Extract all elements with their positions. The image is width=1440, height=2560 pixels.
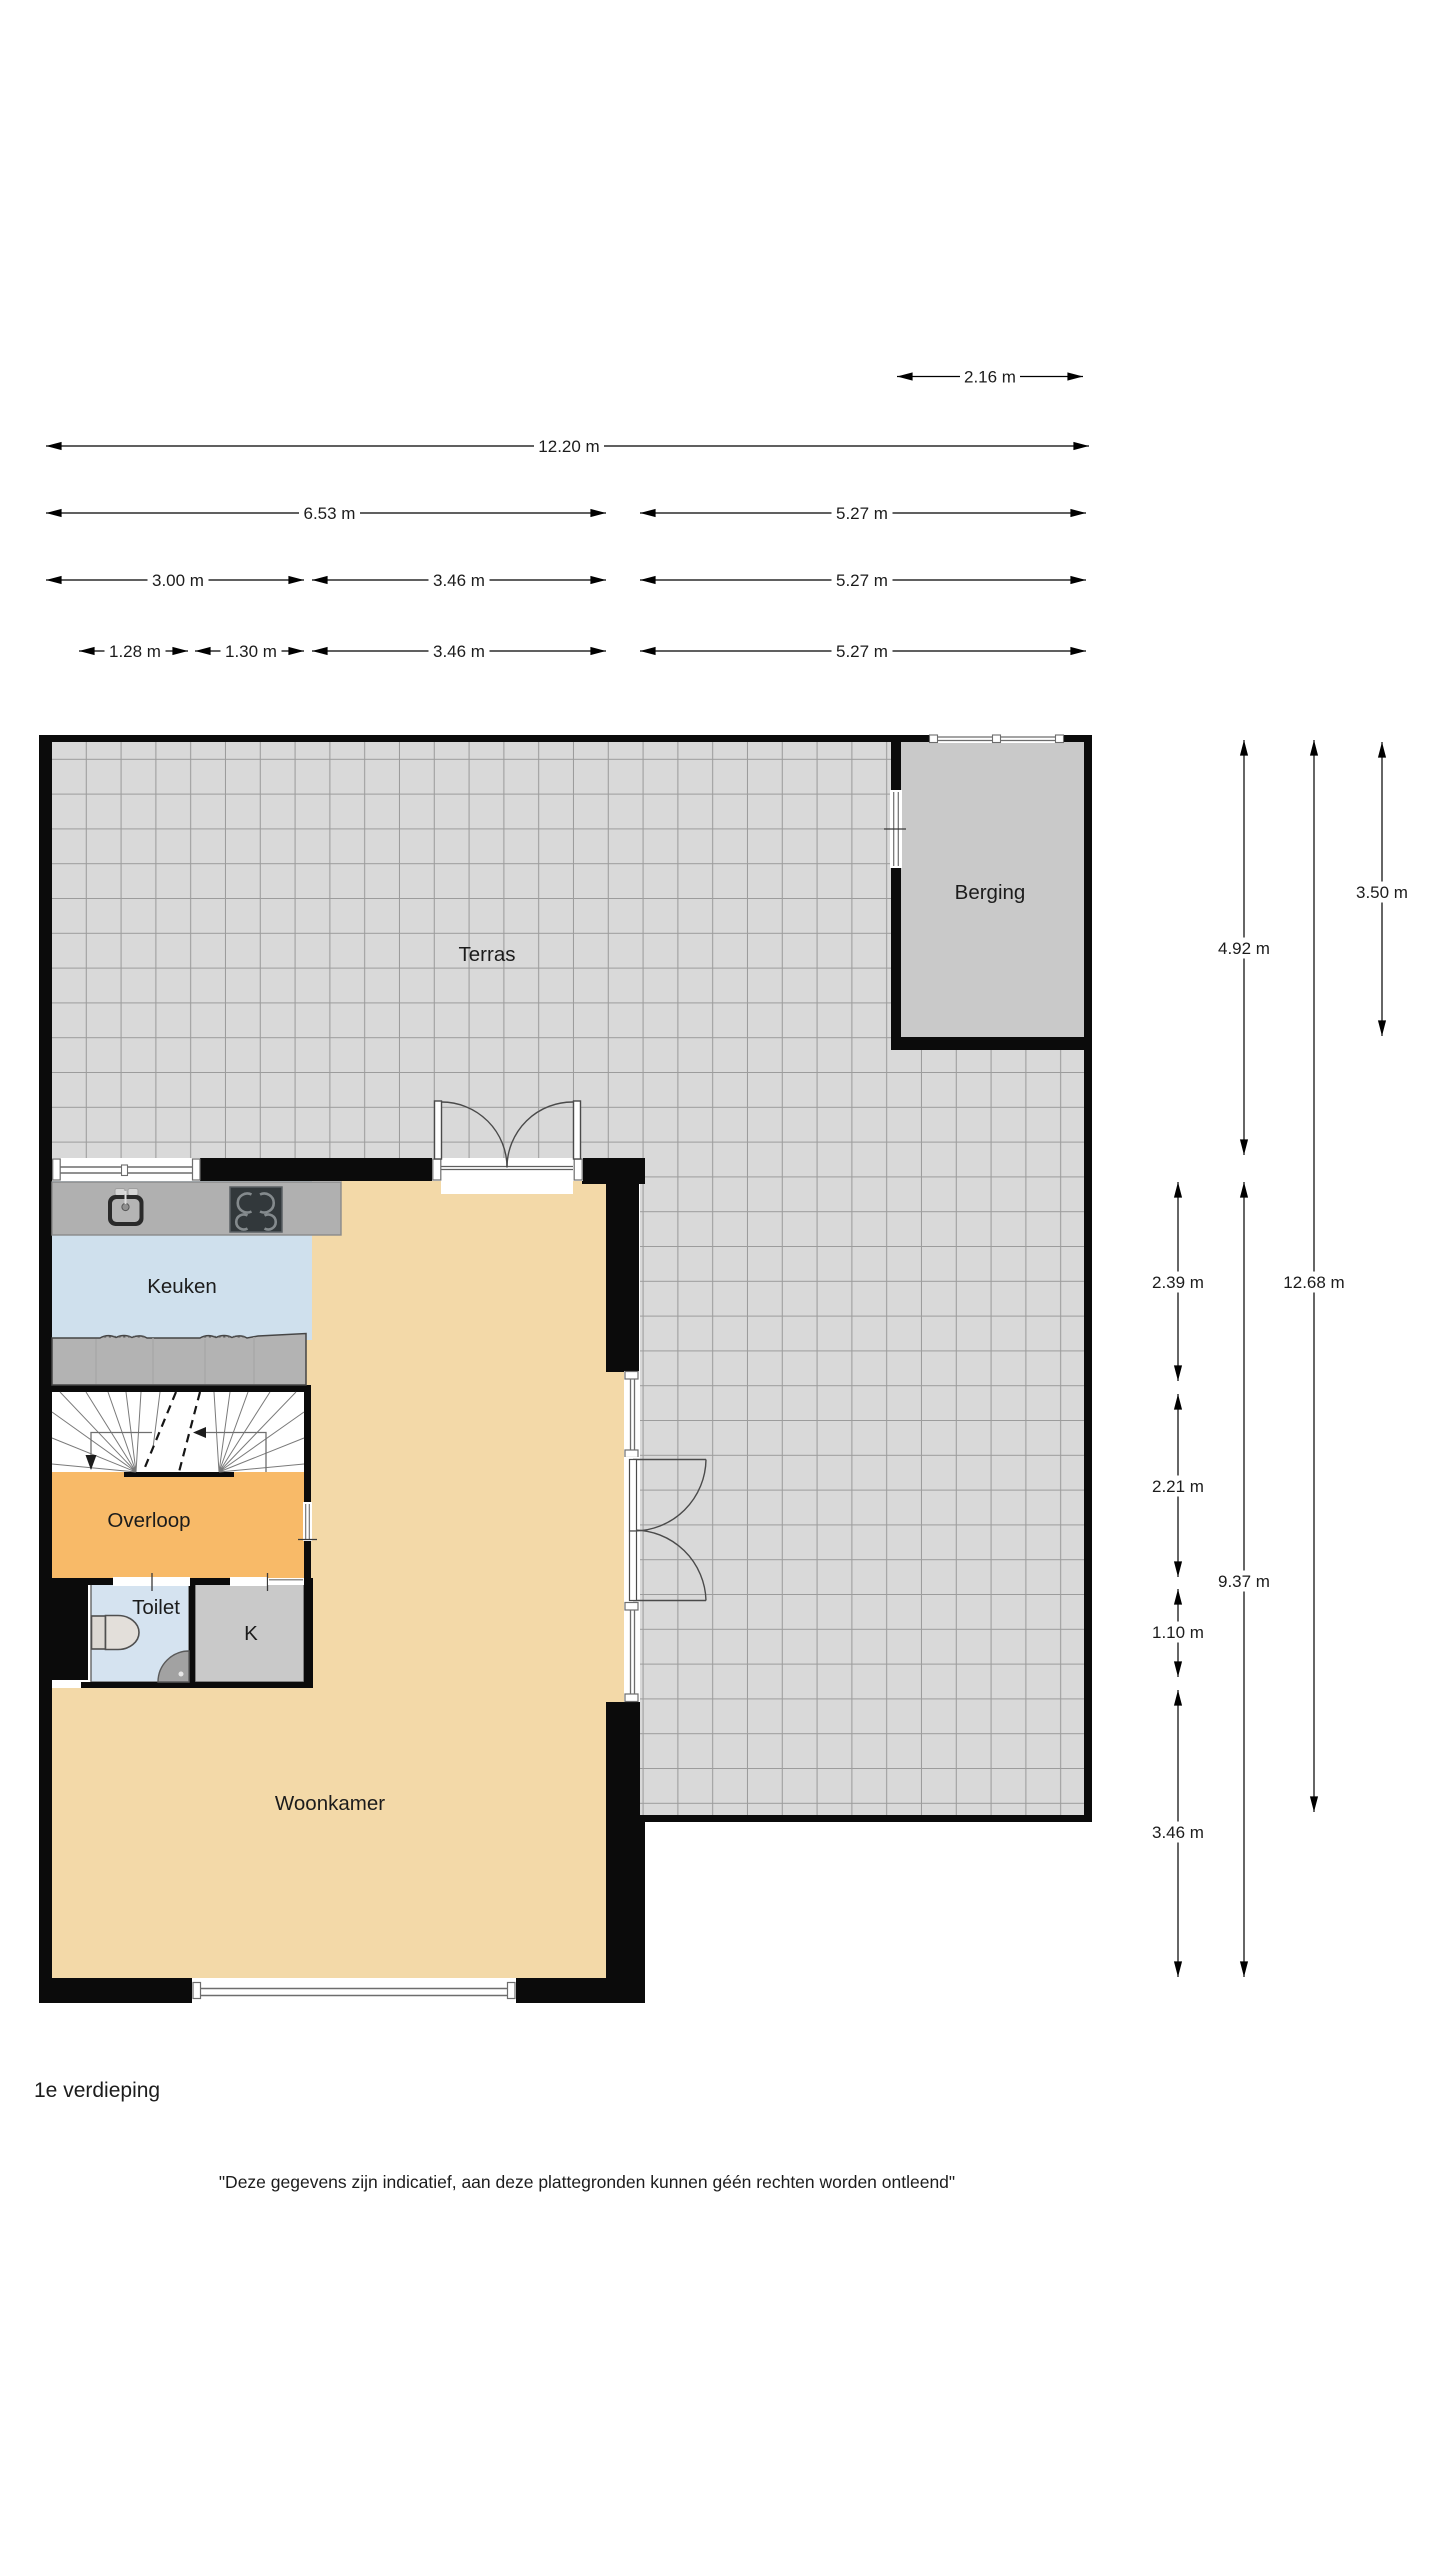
svg-text:"Deze gegevens zijn indicatief: "Deze gegevens zijn indicatief, aan deze…: [219, 2172, 955, 2192]
svg-text:5.27 m: 5.27 m: [836, 642, 888, 661]
svg-text:2.39 m: 2.39 m: [1152, 1273, 1204, 1292]
svg-text:5.27 m: 5.27 m: [836, 504, 888, 523]
svg-text:3.46 m: 3.46 m: [1152, 1823, 1204, 1842]
svg-text:2.21 m: 2.21 m: [1152, 1477, 1204, 1496]
svg-text:3.00 m: 3.00 m: [152, 571, 204, 590]
svg-text:Toilet: Toilet: [132, 1596, 180, 1619]
svg-text:12.20 m: 12.20 m: [538, 437, 599, 456]
svg-text:3.50 m: 3.50 m: [1356, 883, 1408, 902]
svg-text:Keuken: Keuken: [147, 1275, 217, 1298]
svg-text:9.37 m: 9.37 m: [1218, 1572, 1270, 1591]
svg-text:3.46 m: 3.46 m: [433, 571, 485, 590]
svg-text:Berging: Berging: [955, 881, 1026, 904]
svg-text:Woonkamer: Woonkamer: [275, 1792, 385, 1815]
svg-text:Overloop: Overloop: [107, 1509, 190, 1532]
svg-text:K: K: [244, 1622, 258, 1645]
svg-text:3.46 m: 3.46 m: [433, 642, 485, 661]
svg-text:1.28 m: 1.28 m: [109, 642, 161, 661]
svg-text:1e verdieping: 1e verdieping: [34, 2079, 160, 2102]
svg-text:2.16 m: 2.16 m: [964, 368, 1016, 387]
svg-text:1.10 m: 1.10 m: [1152, 1623, 1204, 1642]
svg-text:4.92 m: 4.92 m: [1218, 939, 1270, 958]
svg-text:1.30 m: 1.30 m: [225, 642, 277, 661]
svg-text:12.68 m: 12.68 m: [1283, 1273, 1344, 1292]
svg-text:Terras: Terras: [459, 943, 516, 966]
svg-text:6.53 m: 6.53 m: [304, 504, 356, 523]
svg-text:5.27 m: 5.27 m: [836, 571, 888, 590]
